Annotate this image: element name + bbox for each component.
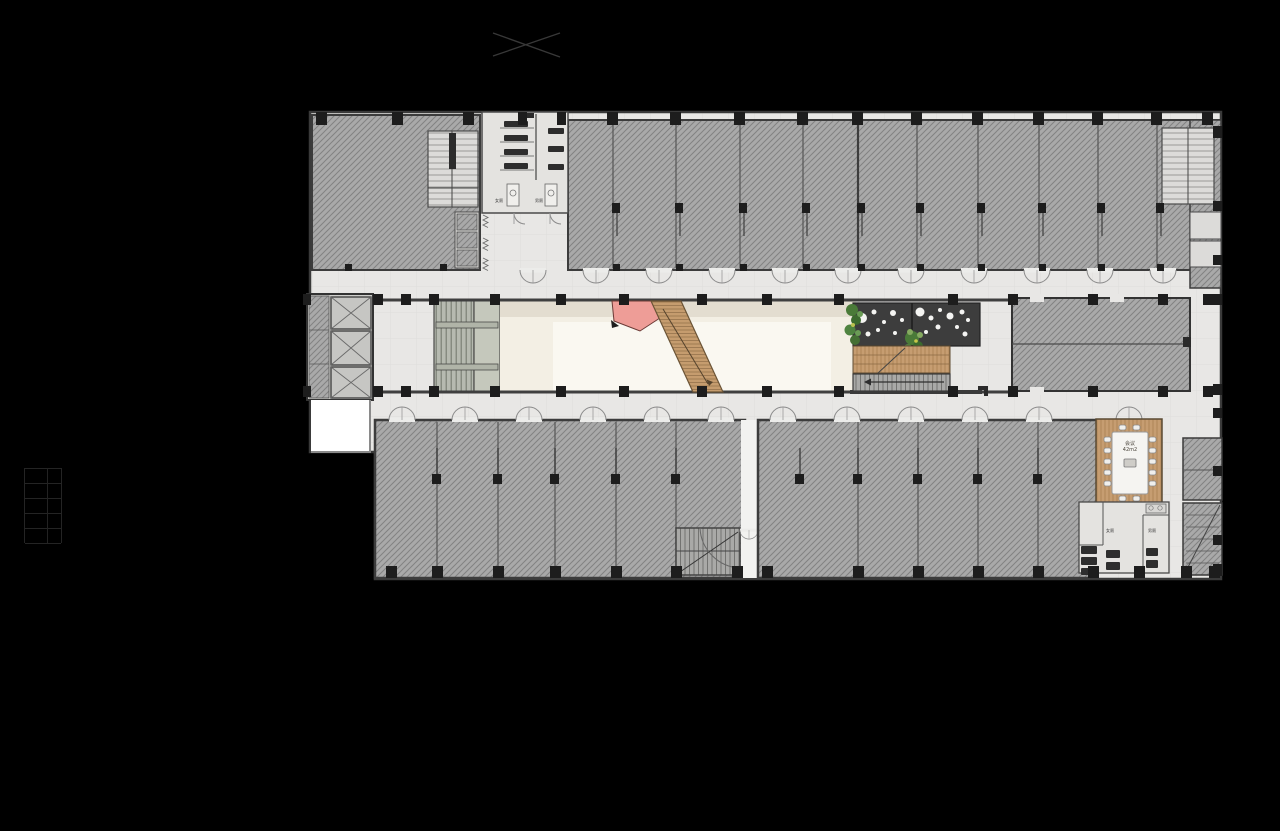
escalator-bank xyxy=(434,300,500,392)
elevator-core xyxy=(307,294,373,400)
right-edge-rooms xyxy=(1183,438,1222,575)
restroom-upper xyxy=(482,112,568,224)
floor-plan-drawing xyxy=(0,0,1280,831)
faint-reference-grid xyxy=(24,468,62,543)
lower-corridor xyxy=(741,420,758,578)
stair-upper-left xyxy=(428,131,478,207)
x-survey-mark xyxy=(493,33,560,57)
lightwell-square xyxy=(311,400,370,452)
floor-plan-canvas: 会议 42m2 女厕 男厕 女厕 男厕 xyxy=(0,0,1280,831)
restroom-lower xyxy=(1079,502,1169,575)
stair-grey-atrium xyxy=(853,374,950,391)
lower-right-suite xyxy=(758,420,1097,578)
stair-lower-left xyxy=(676,528,740,575)
conference-room xyxy=(1096,419,1162,503)
